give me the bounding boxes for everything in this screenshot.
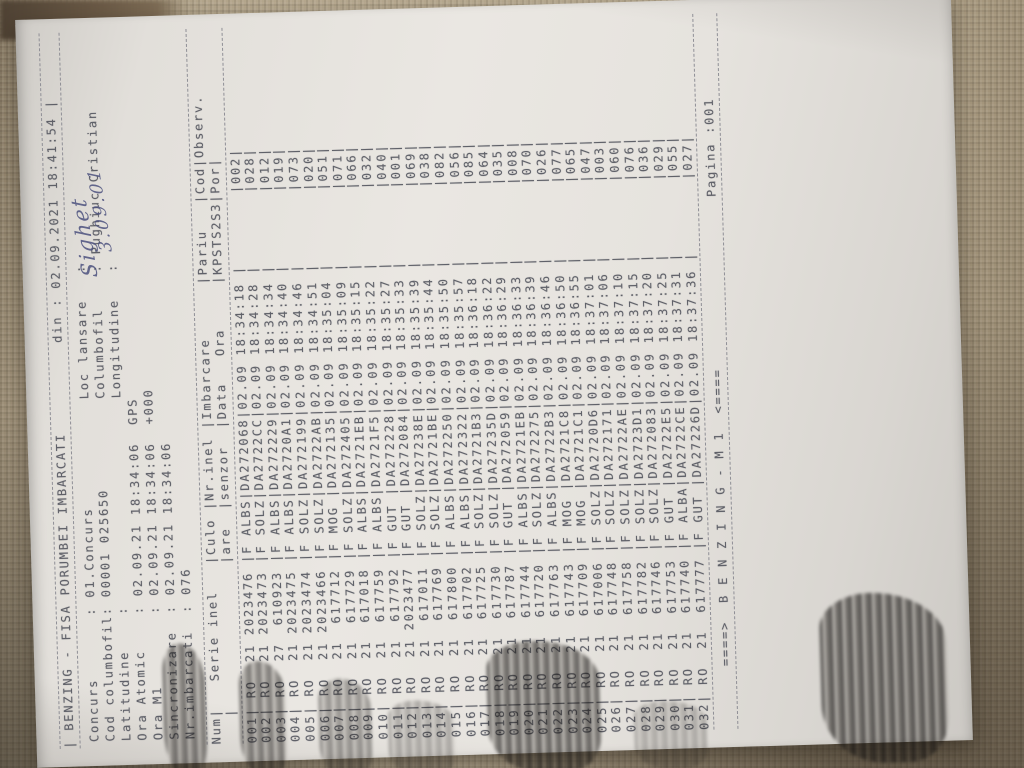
report-info-block: Concurs : 01.Concurs Loc lansare : Cod c… — [65, 29, 198, 742]
paper-sheet: | BENZING - FISA PORUMBEI IMBARCATI din … — [15, 0, 973, 768]
toner-smudge — [387, 699, 455, 768]
pigeon-table: Num| Serie inel |Culo |Nr.inel |Imbarcar… — [185, 14, 714, 745]
toner-smudge — [819, 591, 950, 765]
toner-smudge — [318, 678, 373, 768]
toner-smudge — [238, 660, 287, 768]
photo-background: | BENZING - FISA PORUMBEI IMBARCATI din … — [0, 0, 1024, 768]
toner-smudge — [634, 700, 708, 768]
table-rows: 001| RO 21 2023476 |F ALBS|DA272068|02.0… — [224, 14, 712, 744]
toner-smudge — [486, 639, 602, 768]
toner-smudge — [162, 643, 208, 768]
